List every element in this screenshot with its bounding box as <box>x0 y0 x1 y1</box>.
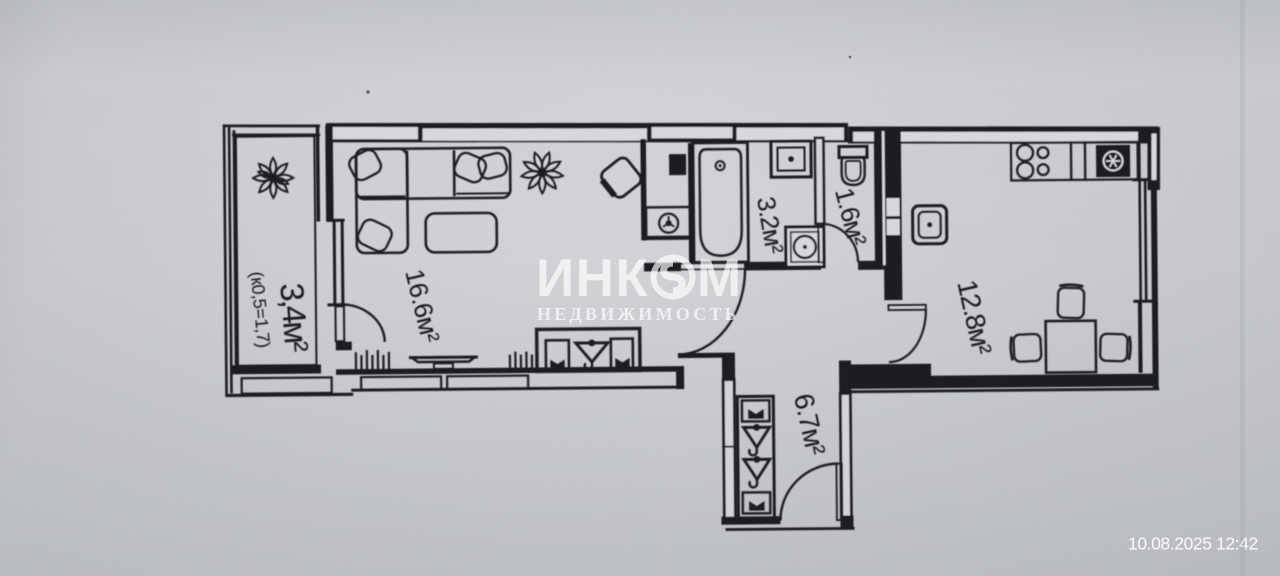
svg-text:3,4м²: 3,4м² <box>273 281 315 353</box>
svg-text:НЕДВИЖИМОСТЬ: НЕДВИЖИМОСТЬ <box>537 304 740 324</box>
svg-text:10.08.2025 12:42: 10.08.2025 12:42 <box>1128 534 1258 554</box>
svg-text:ИНК: ИНК <box>536 249 649 308</box>
svg-text:М: М <box>697 249 741 308</box>
